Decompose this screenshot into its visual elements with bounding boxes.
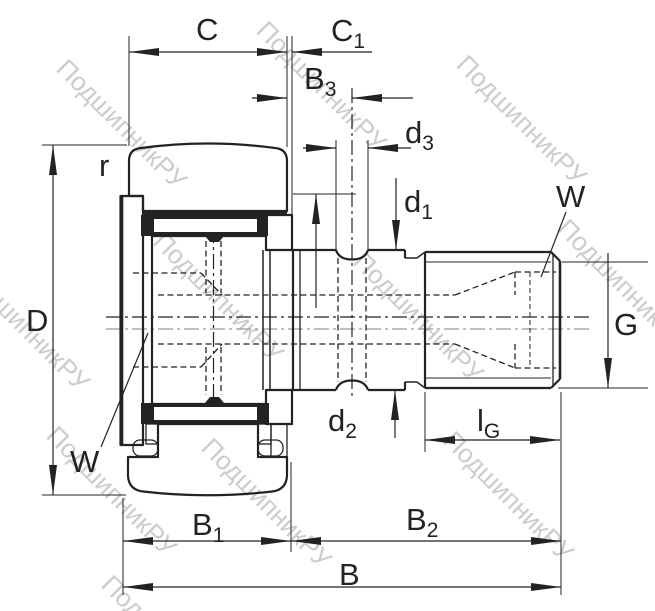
leader-W-bottom xyxy=(101,333,148,447)
dim-d2: d2 xyxy=(328,390,399,443)
label-G: G xyxy=(614,307,638,342)
arrowhead xyxy=(391,390,399,420)
watermark-text: ПодшипникРУ xyxy=(451,49,593,191)
arrowhead xyxy=(530,436,560,444)
needle-roller-body-bottom xyxy=(154,407,257,420)
watermark-text: ПодшипникРУ xyxy=(438,425,580,567)
arrowhead xyxy=(306,144,336,152)
dim-B1-B2: B1 B2 xyxy=(123,502,561,547)
dim-d1: d1 xyxy=(392,178,433,250)
label-r: r xyxy=(99,148,109,183)
watermark-text: ПодшипникРУ xyxy=(51,53,193,195)
drawing-canvas: ПодшипникРУ ПодшипникРУ ПодшипникРУ Подш… xyxy=(0,0,655,611)
end-plate xyxy=(121,196,144,445)
arrowhead xyxy=(392,220,400,250)
watermark-text: ПодшипникРУ xyxy=(552,213,655,355)
thread-chamfer-bottom xyxy=(417,382,425,388)
stud-collar-bottom xyxy=(266,390,292,424)
label-d3: d3 xyxy=(405,115,434,155)
watermark-text: ПодшипникРУ xyxy=(196,432,338,574)
arrowhead xyxy=(312,194,320,224)
label-d2: d2 xyxy=(328,403,357,443)
arrowhead xyxy=(49,145,57,175)
end-plate-body xyxy=(121,196,144,445)
seal-right-body xyxy=(258,424,271,444)
label-W-bottom: W xyxy=(70,444,100,479)
watermark-text: ПодшипникРУ xyxy=(96,569,238,611)
stud-collar-top xyxy=(266,215,292,250)
label-B3: B3 xyxy=(304,61,336,101)
arrowhead xyxy=(531,583,561,591)
watermark-layer: ПодшипникРУ ПодшипникРУ ПодшипникРУ Подш… xyxy=(0,15,655,611)
label-d1: d1 xyxy=(404,184,433,224)
dim-lG: lG xyxy=(425,403,560,444)
label-C: C xyxy=(196,12,218,47)
hex-socket-left-cone-bottom xyxy=(201,344,222,367)
thread-chamfer-top xyxy=(417,252,425,258)
bearing-technical-drawing: ПодшипникРУ ПодшипникРУ ПодшипникРУ Подш… xyxy=(0,0,655,611)
label-B: B xyxy=(339,557,360,592)
dim-B3: B3 xyxy=(252,61,413,102)
label-C1: C1 xyxy=(331,13,365,53)
seal-left-body xyxy=(146,424,158,444)
arrowhead xyxy=(49,465,57,495)
hex-socket-right-cone-top xyxy=(455,272,515,295)
watermark-text: ПодшипникРУ xyxy=(148,226,290,368)
arrowhead xyxy=(257,94,287,102)
label-B1: B1 xyxy=(192,507,224,547)
arrowhead xyxy=(129,48,159,56)
label-D: D xyxy=(26,303,48,338)
label-W-top: W xyxy=(556,179,586,214)
countersink-bottom xyxy=(205,397,224,403)
dim-B: B xyxy=(123,557,561,592)
label-lG: lG xyxy=(477,403,500,443)
arrowhead xyxy=(604,358,612,388)
needle-roller-body-top xyxy=(154,219,257,232)
label-B2: B2 xyxy=(406,502,438,542)
